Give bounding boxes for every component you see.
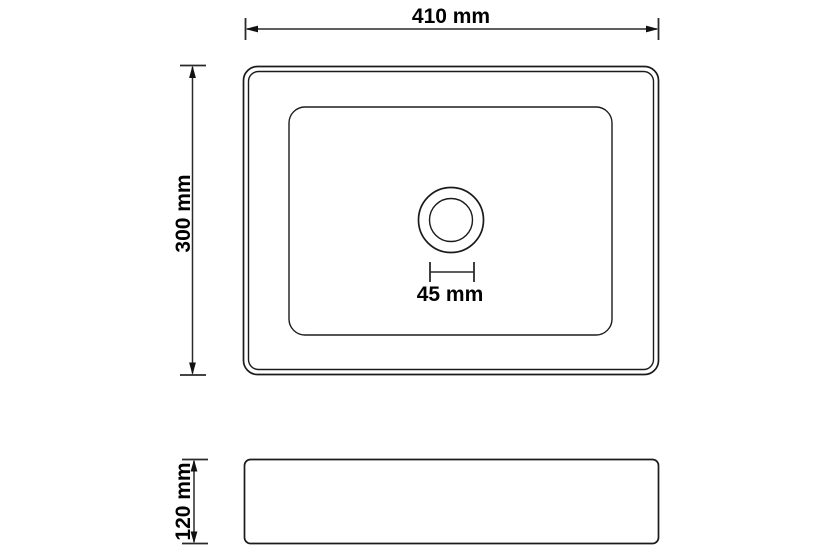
width-dimension: 410 mm — [246, 5, 659, 40]
height-dimension: 120 mm — [172, 460, 208, 544]
depth-dimension-label: 300 mm — [172, 174, 195, 252]
drawing-canvas: 410 mm 300 mm 45 mm — [0, 0, 833, 555]
side-view — [245, 460, 659, 544]
drain-inner-circle — [430, 199, 473, 242]
drain-dimension: 45 mm — [417, 262, 484, 306]
top-view-outer-rim — [244, 67, 659, 375]
depth-dimension-arrow-top — [189, 66, 196, 79]
height-dimension-label: 120 mm — [172, 462, 195, 540]
side-view-outline — [245, 460, 659, 544]
width-dimension-arrow-right — [646, 26, 659, 33]
width-dimension-label: 410 mm — [412, 5, 490, 28]
drain-outer-circle — [419, 188, 484, 253]
top-view: 45 mm — [244, 67, 659, 375]
depth-dimension-arrow-bottom — [189, 363, 196, 376]
depth-dimension: 300 mm — [172, 66, 206, 376]
width-dimension-arrow-left — [246, 26, 259, 33]
basin-dimension-drawing: 410 mm 300 mm 45 mm — [0, 0, 833, 555]
drain-dimension-label: 45 mm — [417, 283, 484, 306]
top-view-inner-rim — [249, 72, 654, 370]
